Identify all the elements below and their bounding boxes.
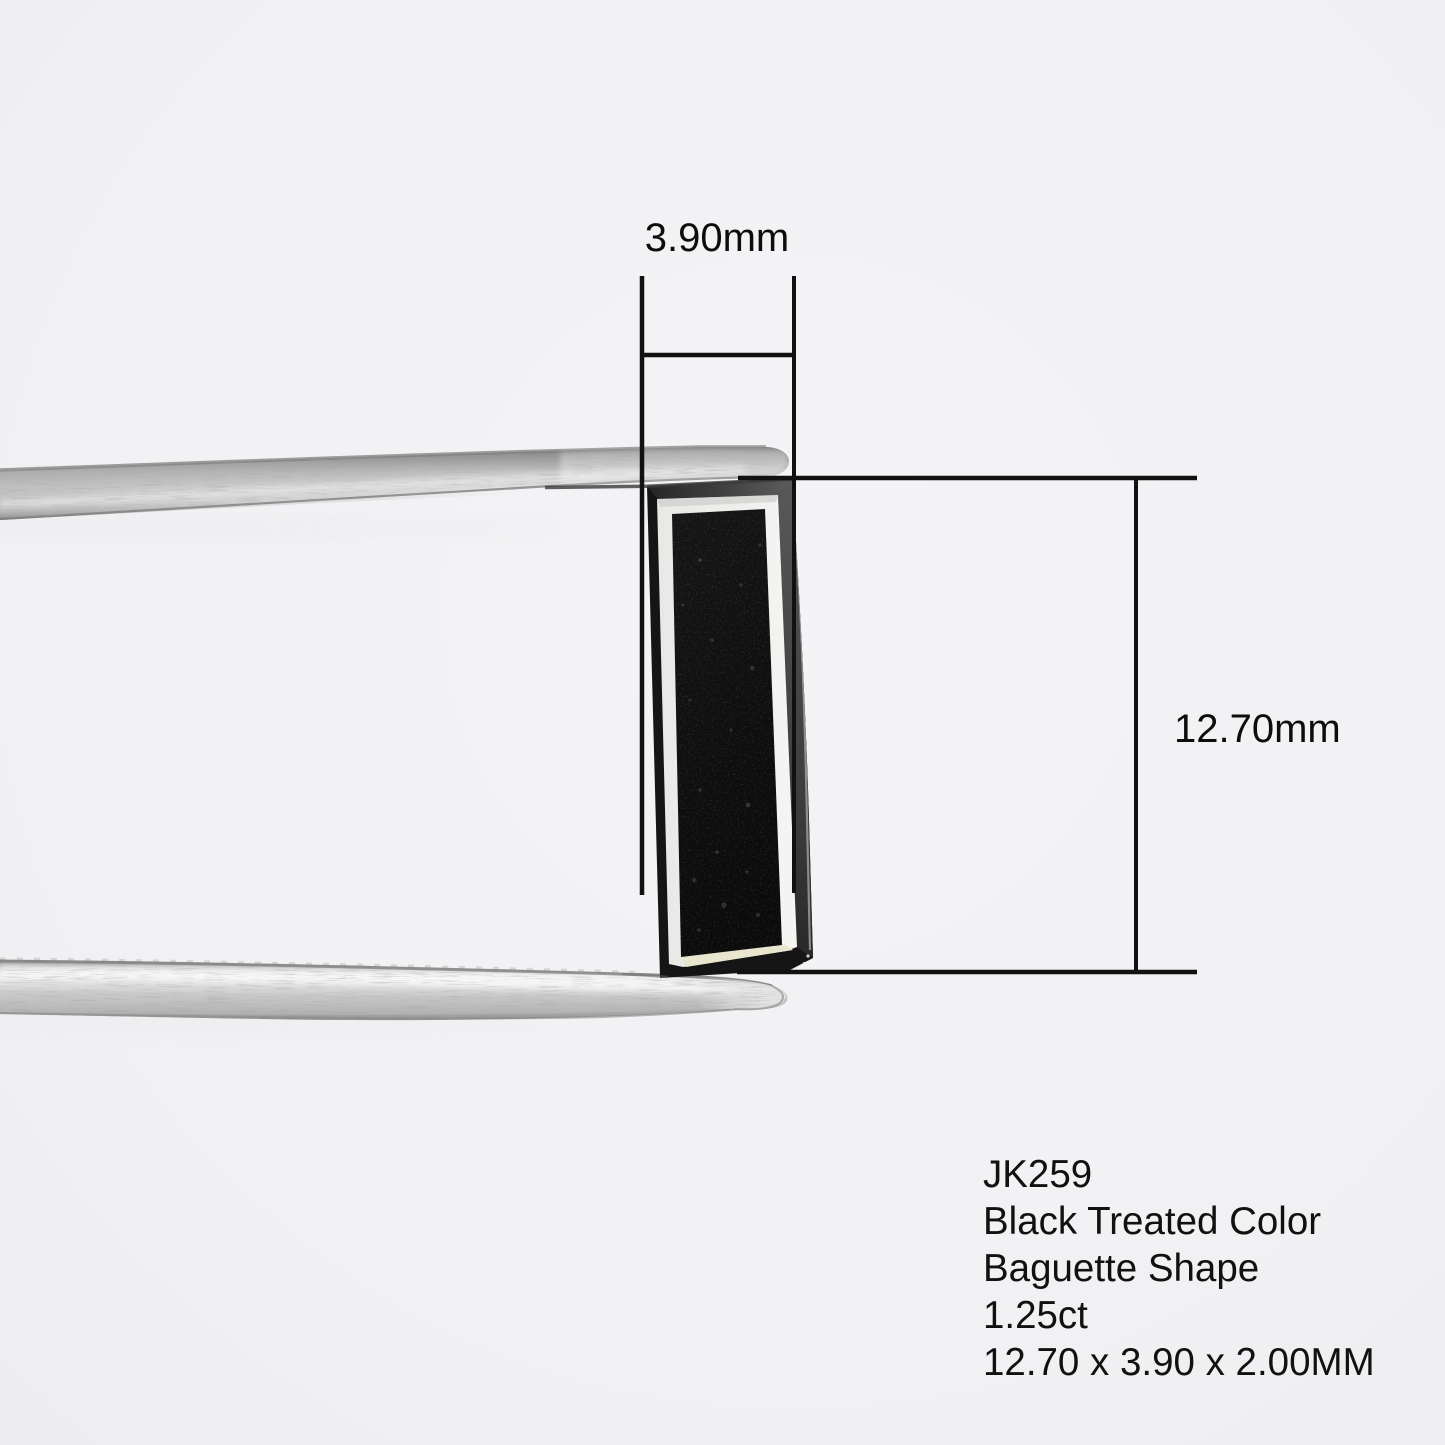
svg-text:Baguette Shape: Baguette Shape bbox=[983, 1247, 1259, 1290]
svg-text:12.70mm: 12.70mm bbox=[1174, 707, 1341, 751]
svg-text:3.90mm: 3.90mm bbox=[645, 216, 790, 260]
svg-text:JK259: JK259 bbox=[983, 1153, 1092, 1196]
svg-text:12.70 x 3.90 x 2.00MM: 12.70 x 3.90 x 2.00MM bbox=[983, 1341, 1375, 1384]
svg-text:Black Treated Color: Black Treated Color bbox=[983, 1200, 1321, 1243]
svg-text:1.25ct: 1.25ct bbox=[983, 1294, 1088, 1337]
